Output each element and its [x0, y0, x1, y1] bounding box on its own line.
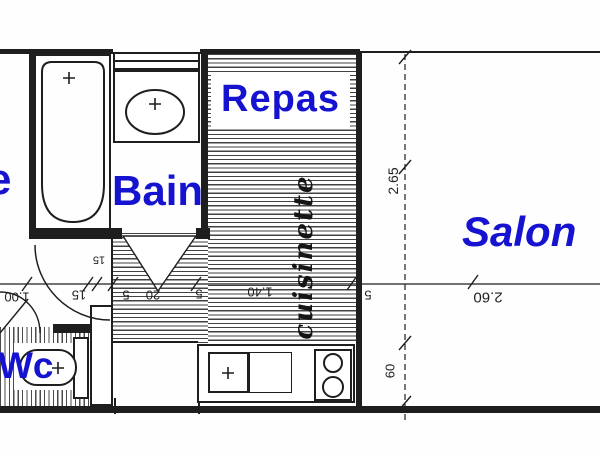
bathtub: [35, 55, 110, 230]
floor-plan: e Bain Repas Salon Wc cuisinette 1.00 15…: [0, 0, 600, 450]
dim-5b: 5: [195, 288, 202, 301]
dim-wall-15b: 15: [93, 254, 105, 265]
bain-door-leaf: [123, 236, 196, 291]
entree-label-partial: e: [0, 158, 11, 202]
bain-label: Bain: [112, 170, 203, 212]
dim-salon-width: 2.60: [473, 290, 502, 305]
repas-label: Repas: [221, 80, 340, 118]
salon-label: Salon: [462, 211, 576, 253]
dim-5a: 5: [122, 289, 129, 302]
dim-20: 20: [146, 289, 160, 302]
stove-burners: [323, 354, 343, 397]
dim-salon-depth: 2.65: [386, 167, 400, 194]
kitchen-sink-cross: [222, 367, 234, 379]
dim-entry-width: 1.00: [4, 291, 29, 304]
washbasin: [126, 90, 184, 134]
dim-wall-15: 15: [72, 289, 86, 302]
bathtub-tap-cross: [63, 72, 75, 84]
wc-label: Wc: [0, 347, 54, 384]
cuisinette-label: cuisinette: [289, 174, 319, 339]
dim-kitchen-length: 1.40: [247, 286, 272, 299]
dim-counter-depth: 60: [384, 364, 397, 378]
dim-5c: 5: [364, 289, 371, 302]
